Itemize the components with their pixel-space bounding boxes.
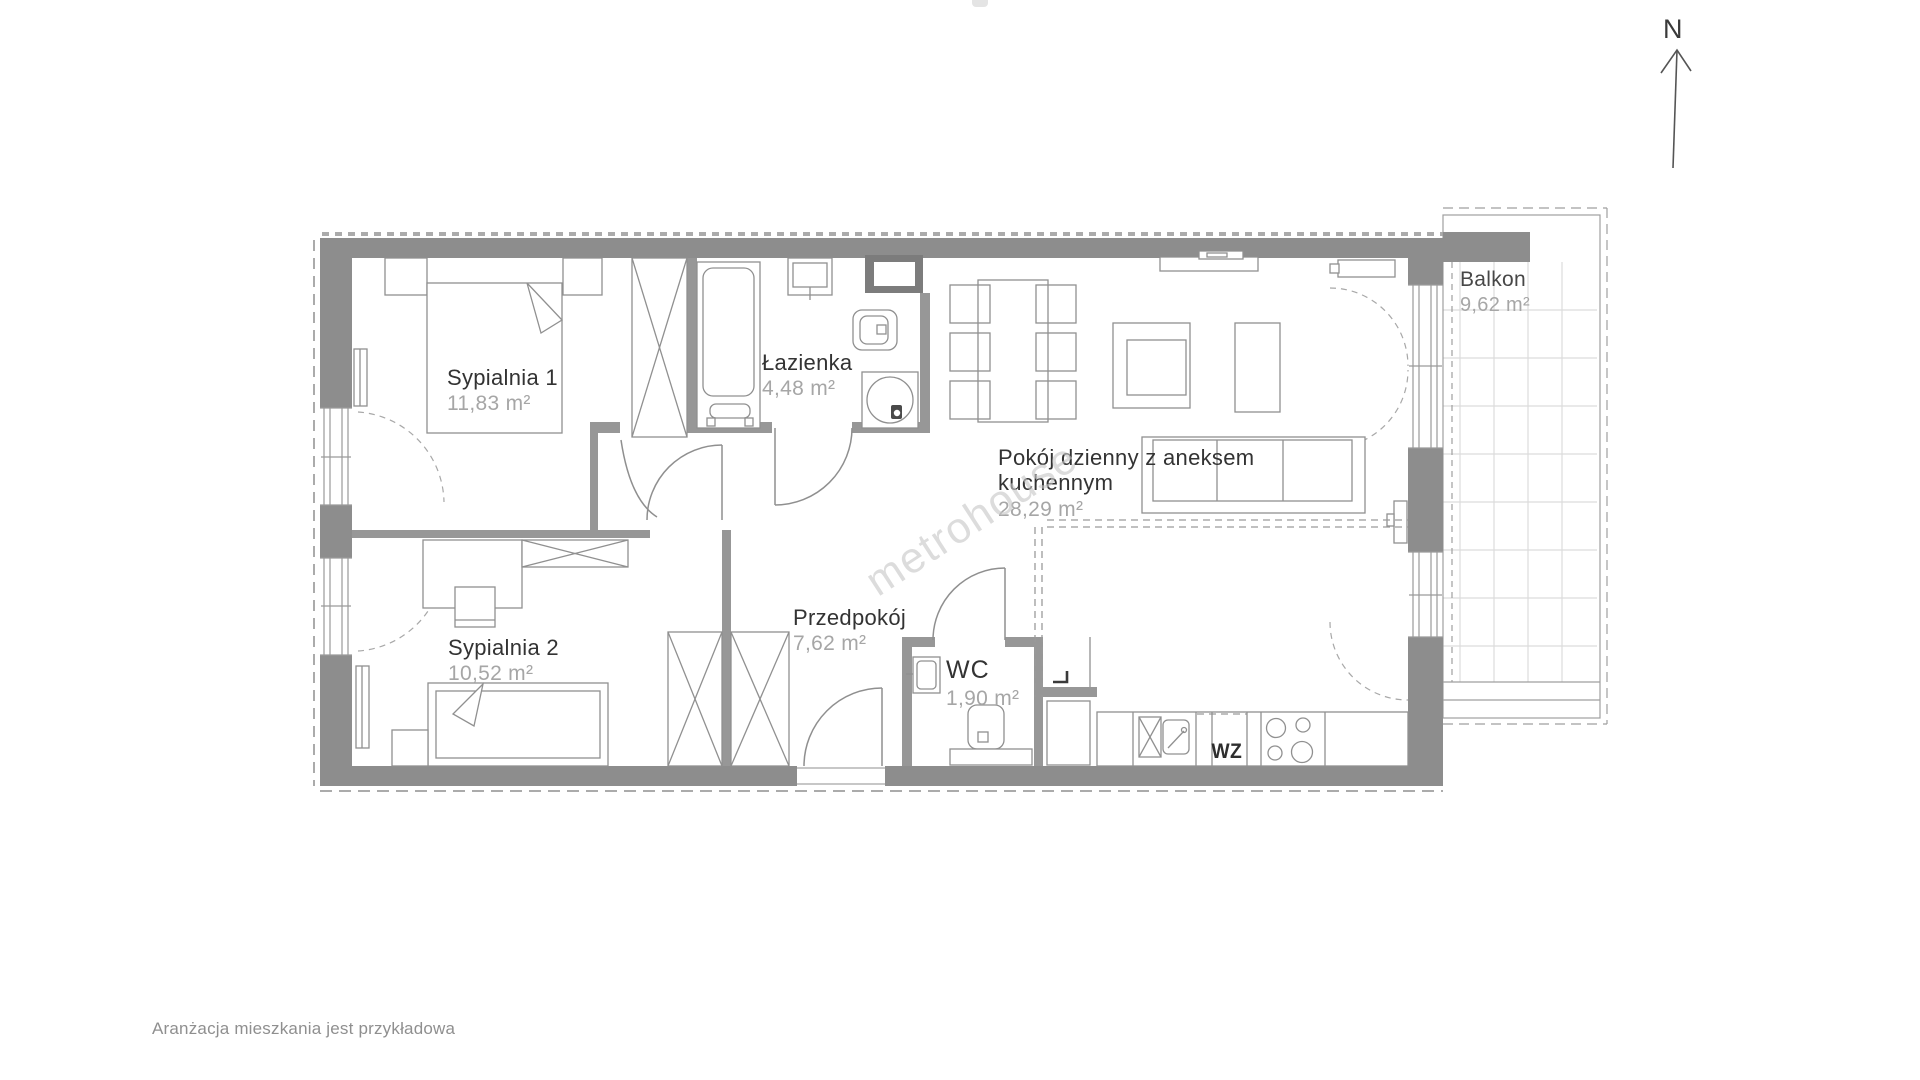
bath-sink — [788, 258, 832, 300]
coffee-table — [1235, 323, 1280, 412]
compass-label: N — [1663, 14, 1683, 45]
room-name: Przedpokój — [793, 605, 906, 630]
room-area: 7,62 m² — [793, 632, 906, 656]
radiator-top — [1330, 260, 1395, 277]
kitchen-wz-label: WZ — [1211, 740, 1242, 764]
kitchen-zone — [1035, 520, 1408, 766]
balcony-tiles — [1443, 262, 1597, 682]
north-arrow-icon — [1661, 50, 1691, 168]
armchair — [1113, 323, 1190, 408]
radiator-right — [1387, 501, 1407, 543]
room-label-przedpokoj: Przedpokój 7,62 m² — [793, 605, 906, 656]
room-area: 9,62 m² — [1460, 294, 1530, 317]
room-area: 1,90 m² — [946, 687, 1019, 711]
fridge-niche — [1047, 637, 1090, 765]
room-name: Sypialnia 1 — [447, 365, 558, 390]
floorplan-canvas: Sypialnia 1 11,83 m² Sypialnia 2 10,52 m… — [0, 0, 1920, 1080]
dining-set — [950, 280, 1076, 422]
room-name: Sypialnia 2 — [448, 635, 559, 660]
room-name: Łazienka — [762, 350, 852, 375]
wardrobe-1 — [632, 258, 687, 437]
room-label-sypialnia-2: Sypialnia 2 10,52 m² — [448, 635, 559, 686]
cropped-logo-fragment — [972, 0, 988, 7]
kitchen-counter — [1097, 712, 1408, 766]
kitchen-dashed-boundary — [1035, 520, 1408, 714]
room-area: 10,52 m² — [448, 662, 559, 686]
toilet — [853, 310, 897, 350]
desk-chair — [455, 587, 495, 627]
disclaimer-text: Aranżacja mieszkania jest przykładowa — [152, 1019, 455, 1039]
room-area: 4,48 m² — [762, 377, 852, 401]
room-name: Balkon — [1460, 268, 1530, 292]
room-name: WC — [946, 656, 1019, 685]
washing-machine — [862, 372, 918, 428]
wardrobe-2 — [522, 540, 628, 567]
kitchen-sink — [1139, 717, 1189, 757]
room-label-sypialnia-1: Sypialnia 1 11,83 m² — [447, 365, 558, 416]
room-label-wc: WC 1,90 m² — [946, 656, 1019, 711]
room-label-balkon: Balkon 9,62 m² — [1460, 268, 1530, 317]
wc-toilet — [950, 705, 1032, 765]
room-area: 11,83 m² — [447, 392, 558, 416]
stove-burners — [1267, 718, 1313, 763]
room-label-lazienka: Łazienka 4,48 m² — [762, 350, 852, 401]
ventilation-shaft — [865, 255, 923, 293]
